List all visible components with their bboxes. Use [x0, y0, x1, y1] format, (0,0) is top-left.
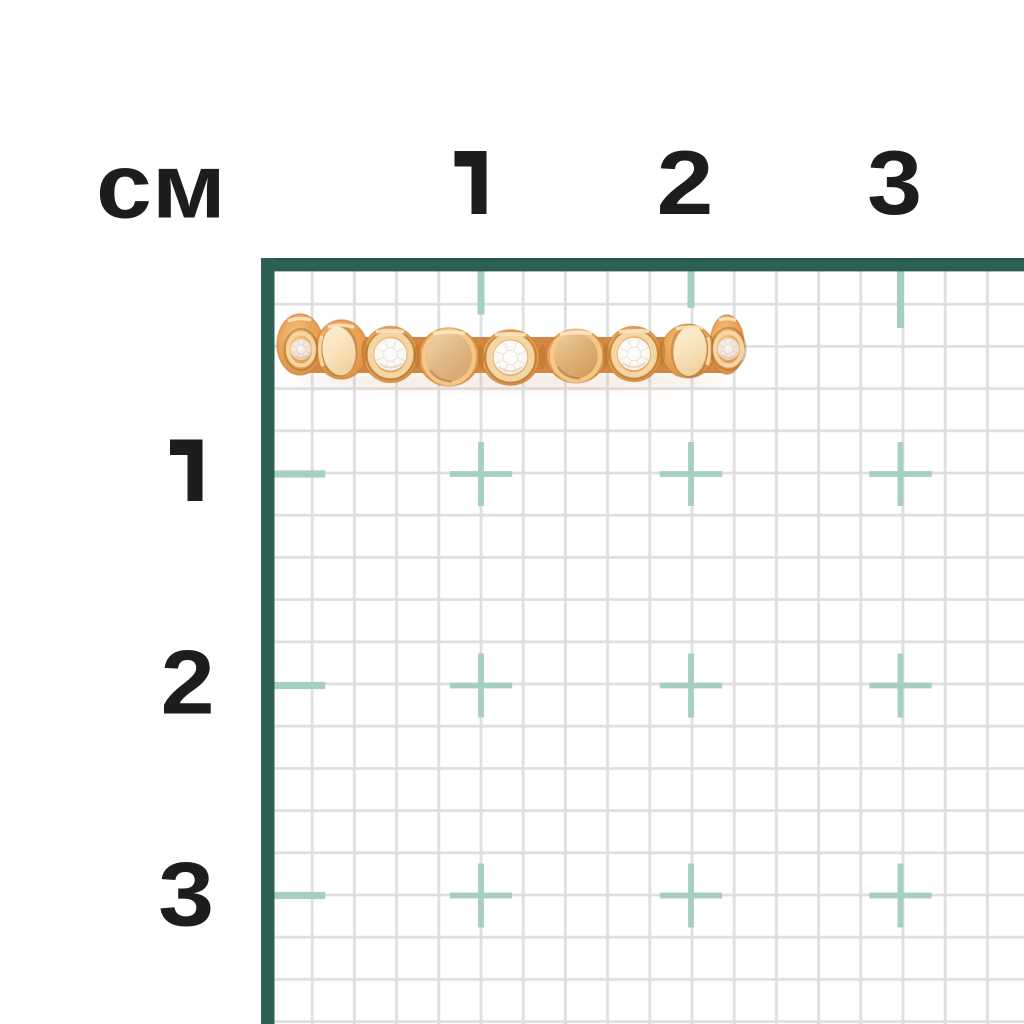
svg-text:3: 3 [867, 133, 922, 234]
svg-text:2: 2 [657, 133, 714, 234]
svg-text:2: 2 [161, 632, 215, 733]
svg-text:3: 3 [158, 845, 214, 946]
svg-text:см: см [96, 136, 226, 238]
